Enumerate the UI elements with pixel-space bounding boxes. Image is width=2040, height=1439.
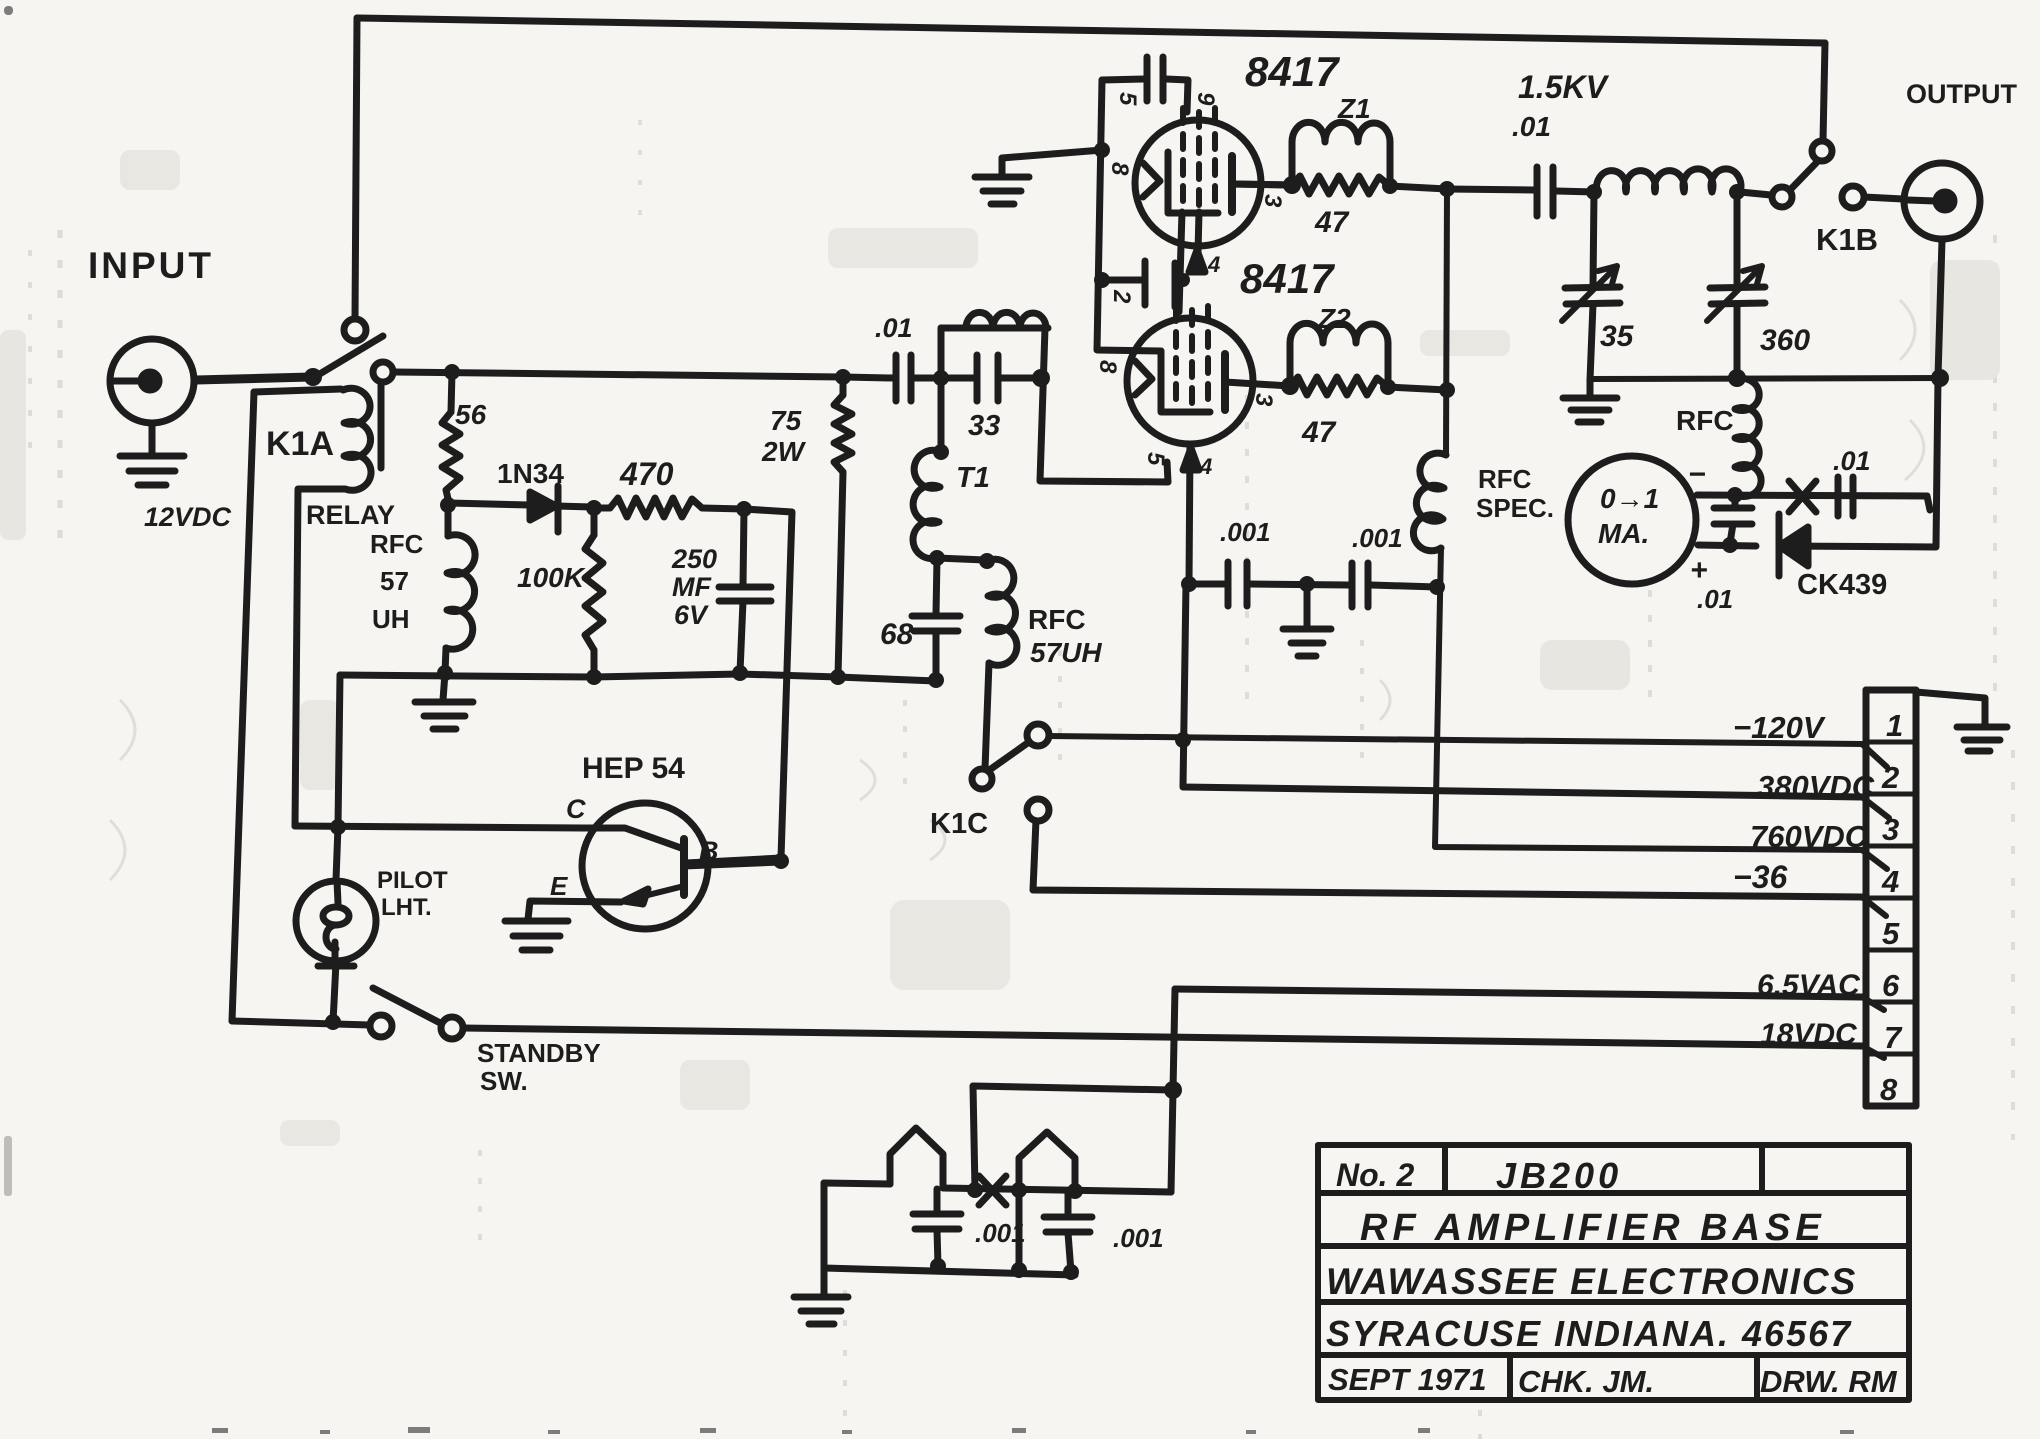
svg-text:7: 7: [1884, 1020, 1903, 1055]
svg-text:1: 1: [1886, 708, 1903, 743]
svg-text:.001: .001: [975, 1218, 1026, 1248]
svg-text:47: 47: [1301, 416, 1337, 449]
svg-text:K1A: K1A: [266, 425, 334, 463]
svg-text:DRW. RM: DRW. RM: [1760, 1364, 1898, 1399]
svg-text:.001: .001: [1113, 1223, 1164, 1253]
svg-text:.01: .01: [1697, 584, 1733, 614]
svg-text:E: E: [550, 871, 568, 901]
svg-text:3: 3: [1250, 393, 1277, 407]
svg-text:SEPT 1971: SEPT 1971: [1328, 1362, 1487, 1397]
svg-text:INPUT: INPUT: [88, 245, 214, 286]
svg-text:STANDBY: STANDBY: [477, 1038, 601, 1068]
svg-text:4: 4: [1881, 864, 1899, 899]
svg-text:360: 360: [1760, 324, 1810, 357]
svg-text:MA.: MA.: [1598, 518, 1649, 549]
svg-text:2: 2: [1881, 760, 1899, 795]
svg-text:6.5VAC: 6.5VAC: [1757, 969, 1861, 1002]
svg-text:−: −: [1688, 458, 1706, 491]
svg-text:57UH: 57UH: [1030, 637, 1102, 668]
svg-text:CHK. JM.: CHK. JM.: [1518, 1364, 1654, 1399]
svg-text:PILOT: PILOT: [377, 867, 448, 894]
svg-text:470: 470: [619, 456, 674, 492]
svg-text:RF AMPLIFIER BASE: RF AMPLIFIER BASE: [1360, 1207, 1826, 1249]
svg-text:.01: .01: [1833, 446, 1871, 476]
svg-text:6: 6: [1882, 968, 1900, 1003]
svg-text:2: 2: [1108, 289, 1135, 304]
svg-text:SPEC.: SPEC.: [1476, 493, 1554, 523]
svg-text:57: 57: [380, 566, 409, 596]
svg-text:RFC: RFC: [1478, 464, 1532, 494]
svg-text:No. 2: No. 2: [1336, 1157, 1414, 1193]
svg-text:3: 3: [1259, 194, 1286, 208]
svg-text:18VDC: 18VDC: [1760, 1018, 1858, 1051]
svg-text:MF: MF: [672, 572, 712, 602]
svg-text:760VDC: 760VDC: [1750, 819, 1868, 854]
svg-text:5: 5: [1114, 92, 1141, 106]
svg-text:+: +: [1690, 554, 1708, 587]
svg-text:5: 5: [1882, 916, 1900, 951]
svg-text:68: 68: [880, 618, 914, 651]
svg-text:.01: .01: [875, 313, 913, 343]
svg-text:250: 250: [671, 544, 717, 574]
svg-text:8: 8: [1094, 360, 1121, 374]
svg-text:WAWASSEE ELECTRONICS: WAWASSEE ELECTRONICS: [1326, 1261, 1857, 1302]
svg-text:K1B: K1B: [1816, 222, 1878, 257]
svg-text:8: 8: [1880, 1072, 1898, 1107]
svg-text:8417: 8417: [1240, 255, 1335, 302]
svg-text:47: 47: [1314, 206, 1350, 239]
svg-text:56: 56: [455, 399, 487, 430]
svg-text:C: C: [566, 794, 586, 824]
svg-text:.001: .001: [1352, 523, 1403, 553]
svg-text:1N34: 1N34: [497, 458, 564, 489]
svg-text:9: 9: [1192, 92, 1219, 106]
svg-text:−120V: −120V: [1733, 710, 1826, 745]
svg-text:CK439: CK439: [1797, 569, 1887, 601]
svg-text:UH: UH: [372, 604, 410, 634]
svg-text:−36: −36: [1733, 859, 1787, 895]
svg-text:8417: 8417: [1245, 48, 1340, 95]
svg-text:B: B: [699, 836, 719, 866]
svg-text:4: 4: [1199, 454, 1212, 479]
svg-text:2W: 2W: [761, 436, 807, 467]
svg-text:0→1: 0→1: [1600, 483, 1659, 514]
svg-text:8: 8: [1106, 162, 1133, 176]
svg-text:Z1: Z1: [1337, 93, 1371, 124]
svg-text:RFC: RFC: [1028, 604, 1086, 635]
svg-text:HEP 54: HEP 54: [582, 752, 685, 785]
svg-text:380VDC: 380VDC: [1757, 769, 1875, 804]
svg-text:33: 33: [968, 410, 1000, 442]
svg-text:RFC: RFC: [1676, 405, 1734, 436]
svg-text:5: 5: [1142, 452, 1169, 466]
svg-text:1.5KV: 1.5KV: [1518, 69, 1610, 105]
svg-text:4: 4: [1207, 252, 1220, 277]
svg-text:6V: 6V: [674, 600, 709, 630]
svg-text:OUTPUT: OUTPUT: [1906, 79, 2018, 109]
svg-text:3: 3: [1882, 812, 1899, 847]
svg-text:RELAY: RELAY: [306, 500, 395, 530]
svg-text:.01: .01: [1512, 111, 1551, 142]
svg-text:RFC: RFC: [370, 529, 424, 559]
svg-text:12VDC: 12VDC: [144, 502, 232, 532]
svg-text:.001: .001: [1220, 517, 1271, 547]
svg-text:75: 75: [770, 405, 802, 436]
svg-text:K1C: K1C: [930, 808, 988, 840]
svg-text:T1: T1: [956, 462, 990, 494]
svg-text:35: 35: [1600, 320, 1635, 353]
svg-text:LHT.: LHT.: [381, 894, 432, 921]
svg-text:SW.: SW.: [480, 1066, 528, 1096]
svg-text:SYRACUSE INDIANA. 46567: SYRACUSE INDIANA. 46567: [1326, 1313, 1852, 1354]
svg-text:JB200: JB200: [1496, 1155, 1622, 1196]
svg-text:100K: 100K: [517, 562, 586, 593]
svg-text:Z2: Z2: [1317, 303, 1351, 334]
